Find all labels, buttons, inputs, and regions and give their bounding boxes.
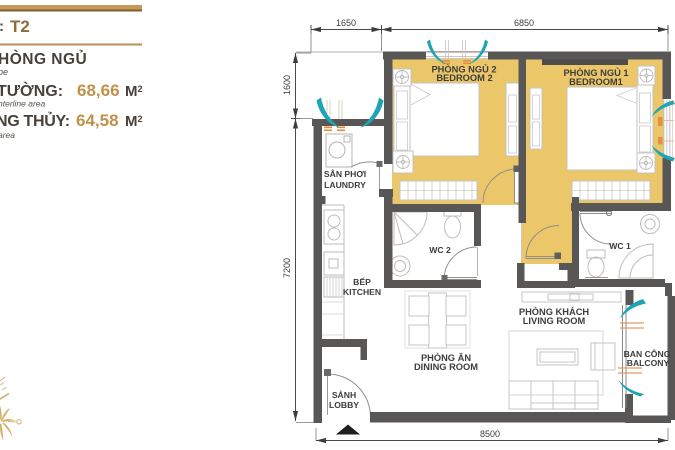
- svg-text:M2: M2: [125, 83, 143, 100]
- svg-text:DINING ROOM: DINING ROOM: [414, 362, 478, 372]
- svg-text:TƯỜNG:: TƯỜNG:: [0, 81, 63, 100]
- svg-text:WC 2: WC 2: [429, 245, 451, 255]
- svg-text:LAUNDRY: LAUNDRY: [324, 180, 366, 190]
- svg-text:BEDROOM 2: BEDROOM 2: [436, 73, 492, 83]
- svg-text:NG THỦY:: NG THỦY:: [0, 111, 70, 130]
- svg-text:T2: T2: [10, 17, 30, 36]
- svg-text:BẾP: BẾP: [353, 277, 371, 287]
- svg-text:KITCHEN: KITCHEN: [343, 287, 381, 297]
- svg-text:BALCONY: BALCONY: [627, 358, 670, 368]
- svg-text::: :: [0, 18, 4, 35]
- svg-text:1600: 1600: [282, 75, 292, 95]
- svg-text:M2: M2: [125, 113, 143, 130]
- svg-text:LIVING ROOM: LIVING ROOM: [523, 316, 586, 326]
- svg-text:SẢNH: SẢNH: [332, 389, 356, 400]
- svg-text:8500: 8500: [480, 429, 500, 439]
- svg-text:7200: 7200: [282, 258, 292, 278]
- svg-text:pe: pe: [0, 67, 8, 77]
- svg-text:LOBBY: LOBBY: [329, 400, 359, 410]
- svg-text:HÒNG NGỦ: HÒNG NGỦ: [0, 50, 87, 68]
- svg-text:6850: 6850: [514, 18, 534, 28]
- svg-text:1650: 1650: [336, 18, 356, 28]
- svg-text:area: area: [0, 130, 15, 140]
- svg-text:68,66: 68,66: [77, 81, 120, 100]
- svg-text:nterline area: nterline area: [0, 99, 46, 109]
- svg-text:SÂN PHƠI: SÂN PHƠI: [324, 168, 366, 179]
- svg-text:BEDROOM1: BEDROOM1: [569, 77, 623, 87]
- svg-text:64,58: 64,58: [76, 111, 119, 130]
- svg-text:WC 1: WC 1: [609, 241, 631, 251]
